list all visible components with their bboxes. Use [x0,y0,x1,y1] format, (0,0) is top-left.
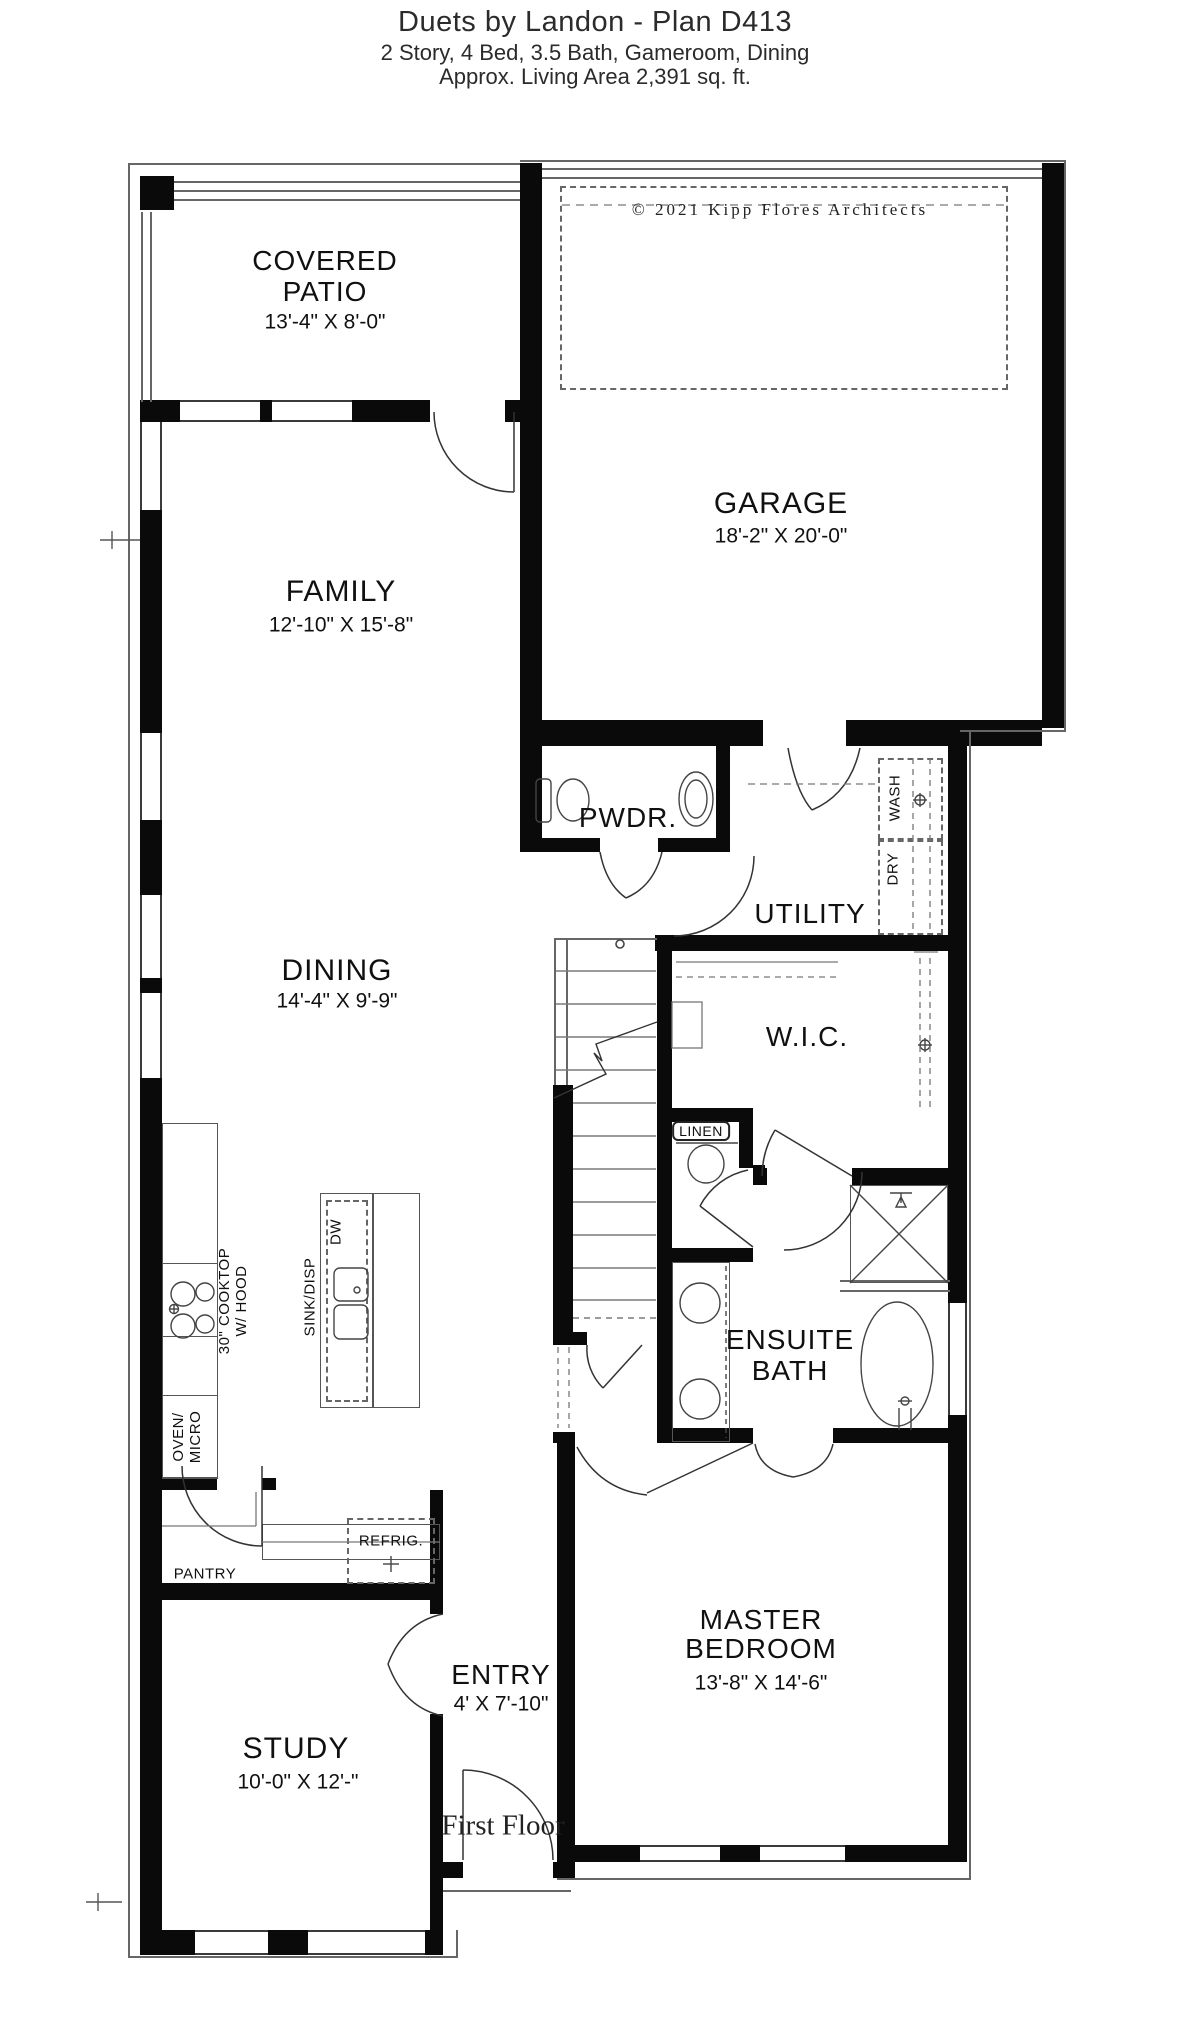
room-label-ensuite-2: BATH [752,1357,829,1385]
label-oven-line1: OVEN/ [170,1411,187,1464]
room-dims-dining: 14'-4" X 9'-9" [277,991,398,1012]
room-label-garage: GARAGE [714,489,848,519]
label-oven-line2: MICRO [187,1411,204,1464]
cooktop-icon [171,1282,195,1306]
plan-subtitle: 2 Story, 4 Bed, 3.5 Bath, Gameroom, Dini… [0,40,1190,66]
bathtub-icon [861,1302,933,1426]
label-cooktop-line2: W/ HOOD [233,1248,250,1354]
label-refrig: REFRIG. [359,1534,423,1549]
label-cooktop-line1: 30" COOKTOP [216,1248,233,1354]
room-dims-entry: 4' X 7'-10" [454,1694,549,1715]
room-label-covered-patio-2: PATIO [283,278,368,306]
floor-label: First Floor [441,1810,564,1843]
room-label-ensuite: ENSUITE [726,1326,854,1354]
room-label-study: STUDY [243,1734,350,1764]
room-label-covered-patio: COVERED [252,247,397,275]
label-dry: DRY [886,853,901,886]
label-cooktop: 30" COOKTOP W/ HOOD [216,1248,251,1354]
room-dims-garage: 18'-2" X 20'-0" [715,526,848,547]
label-oven-micro: OVEN/ MICRO [170,1411,205,1464]
floorplan-drawing [0,0,1200,2024]
label-linen: LINEN [672,1121,730,1141]
stairs [556,940,656,1318]
toilet-icon [536,779,551,822]
casework-lines [162,205,1006,1542]
label-sink-disp: SINK/DISP [303,1258,318,1337]
kitchen-sink-icon [334,1268,368,1301]
toilet-icon [688,1145,724,1183]
room-label-dining: DINING [282,956,393,986]
plan-title: Duets by Landon - Plan D413 [0,6,1190,39]
floor-plan-page: Duets by Landon - Plan D413 2 Story, 4 B… [0,0,1200,2024]
plan-area-note: Approx. Living Area 2,391 sq. ft. [0,64,1190,90]
room-dims-study: 10'-0" X 12'-" [238,1772,359,1793]
stair-break-line [554,1022,657,1098]
room-label-wic: W.I.C. [766,1023,848,1051]
label-pantry: PANTRY [174,1567,236,1582]
room-dims-family: 12'-10" X 15'-8" [269,615,413,636]
sink-icon [680,1283,720,1323]
room-label-master: MASTER [700,1606,823,1634]
sink-icon [680,1379,720,1419]
room-dims-master: 13'-8" X 14'-6" [695,1673,828,1694]
label-wash: WASH [888,775,903,821]
room-label-master-2: BEDROOM [685,1635,837,1663]
room-label-family: FAMILY [286,577,396,607]
room-label-entry: ENTRY [451,1661,550,1689]
tick-marks [86,531,140,1911]
label-dw: DW [329,1219,344,1245]
copyright-note: © 2021 Kipp Flores Architects [632,200,928,220]
room-label-utility: UTILITY [754,900,865,928]
room-label-powder: PWDR. [579,804,677,832]
room-dims-covered-patio: 13'-4" X 8'-0" [265,312,386,333]
